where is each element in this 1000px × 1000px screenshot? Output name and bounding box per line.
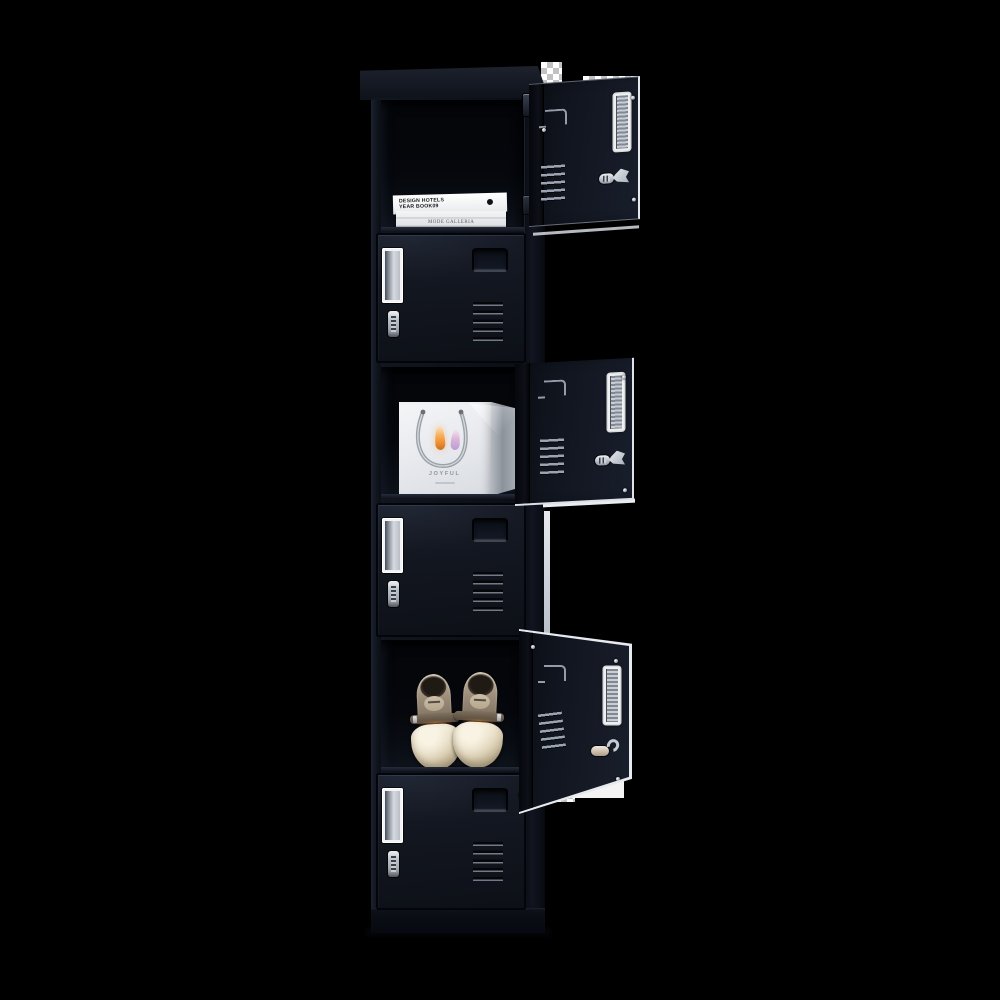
- door-2-closed: [378, 235, 524, 361]
- vent-grille: [540, 436, 564, 477]
- book-title-line2: YEAR BOOK09: [399, 203, 439, 210]
- vent-grille: [541, 162, 565, 204]
- gift-bag: JOYFUL: [399, 400, 517, 496]
- high-heel-shoes: [408, 668, 508, 772]
- cam-lock: [599, 168, 631, 187]
- shoe-right: [451, 665, 506, 771]
- cam-lock: [388, 581, 399, 607]
- label-holder: [382, 518, 403, 573]
- book-spine-second: MODE GALLERIA: [396, 211, 506, 228]
- edge-highlight: [533, 225, 639, 235]
- screw: [623, 488, 627, 492]
- recessed-handle: [472, 248, 508, 272]
- screw: [531, 645, 535, 649]
- edge-highlight: [544, 511, 550, 641]
- label-holder: [614, 93, 630, 151]
- recessed-handle: [472, 788, 508, 812]
- shelf-edge: [381, 767, 524, 772]
- gift-bag-subtext: [435, 482, 455, 484]
- vent-grille: [473, 569, 503, 613]
- door-4-closed: [378, 505, 524, 635]
- compartment-3-open: JOYFUL: [381, 367, 524, 499]
- padlock-hasp-lock: [591, 739, 625, 758]
- cam-lock: [388, 311, 399, 337]
- handle-cutout: [544, 665, 566, 681]
- compartment-1-open: DESIGN HOTELS YEAR BOOK09 MODE GALLERIA: [381, 100, 524, 232]
- door-1-open: [529, 76, 640, 227]
- screw: [616, 777, 620, 781]
- label-holder: [382, 248, 403, 303]
- shelf-edge: [381, 494, 524, 499]
- screw: [622, 375, 626, 379]
- locker-top-panel: [360, 66, 547, 100]
- screw: [542, 128, 546, 132]
- door-3-open: [515, 358, 634, 506]
- label-holder: [382, 788, 403, 843]
- handle-cutout: [545, 108, 567, 126]
- screw: [631, 96, 635, 100]
- book-cover-dot: [487, 199, 493, 205]
- screw: [632, 198, 636, 202]
- screw: [614, 659, 618, 663]
- locker-base: [371, 908, 545, 933]
- vent-grille: [538, 710, 567, 753]
- recessed-handle: [472, 518, 508, 542]
- door-6-closed: [378, 775, 524, 908]
- compartment-5-open: [381, 640, 524, 772]
- product-photo-stage: DESIGN HOTELS YEAR BOOK09 MODE GALLERIA: [0, 0, 1000, 1000]
- label-holder: [608, 373, 624, 431]
- vent-grille: [473, 299, 503, 343]
- book-spine-text: MODE GALLERIA: [396, 218, 506, 225]
- vent-grille: [473, 839, 503, 883]
- handle-cutout: [544, 379, 566, 396]
- cam-lock: [388, 851, 399, 877]
- gift-bag-label: JOYFUL: [399, 468, 491, 480]
- cam-lock: [595, 450, 627, 469]
- label-holder: [604, 667, 620, 724]
- shelf-edge: [381, 227, 524, 232]
- gift-bag-front: JOYFUL: [399, 402, 491, 495]
